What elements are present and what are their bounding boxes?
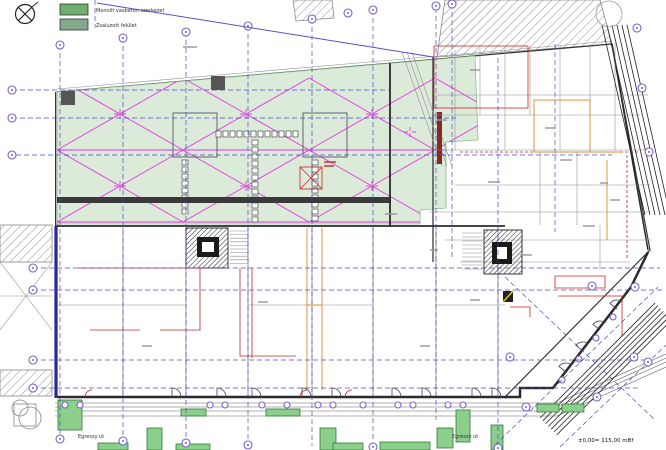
- grid-bubble-dot: [247, 444, 249, 446]
- grid-bubble-dot: [596, 396, 598, 398]
- planter: [333, 443, 363, 450]
- street-label-left: Egressy út: [78, 433, 104, 440]
- grid-bubble-dot: [372, 9, 374, 11]
- grid-bubble-dot: [11, 117, 13, 119]
- grid-bubble-dot: [32, 359, 34, 361]
- grid-bubble-dot: [525, 406, 527, 408]
- grid-bubble-dot: [185, 442, 187, 444]
- plan-line: [252, 210, 258, 215]
- plan-line: [252, 168, 258, 173]
- position-marker: [259, 402, 265, 408]
- grid-bubble-dot: [509, 356, 511, 358]
- legend-item-1-label: Monolit vasbeton szerkezet: [96, 8, 164, 14]
- stair-core-right: [484, 230, 522, 274]
- position-marker: [395, 402, 401, 408]
- planter: [562, 404, 584, 412]
- plan-line: [182, 209, 188, 214]
- position-marker: [593, 335, 599, 341]
- grid-bubble-dot: [122, 440, 124, 442]
- track-line: [557, 320, 666, 435]
- position-marker: [330, 402, 336, 408]
- plan-line: [286, 131, 291, 137]
- position-marker: [445, 402, 451, 408]
- grid-bubble-dot: [648, 151, 650, 153]
- plan-line: [279, 131, 284, 137]
- plan-line: [251, 131, 256, 137]
- plan-line: [258, 131, 263, 137]
- site-plan-drawing: Monolit vasbeton szerkezet Zsaluzott fel…: [0, 0, 666, 450]
- street-planters: [58, 400, 584, 450]
- plan-line: [272, 131, 277, 137]
- grid-bubble-dot: [347, 12, 349, 14]
- grid-bubble-dot: [32, 267, 34, 269]
- grid-bubble-dot: [59, 438, 61, 440]
- plan-line: [216, 131, 221, 137]
- plan-line: [237, 131, 242, 137]
- grid-bubble-dot: [11, 154, 13, 156]
- stair-core-left: [186, 228, 228, 268]
- plan-line: [252, 189, 258, 194]
- grid-bubble-dot: [11, 89, 13, 91]
- plan-line: [252, 182, 258, 187]
- grid-bubble-dot: [59, 44, 61, 46]
- planter: [181, 409, 206, 416]
- plan-line: [252, 217, 258, 222]
- plan-line: [265, 131, 270, 137]
- plan-line: [230, 131, 235, 137]
- grid-bubble-dot: [185, 31, 187, 33]
- position-marker: [360, 402, 366, 408]
- position-marker: [62, 402, 68, 408]
- grid-bubble-dot: [122, 37, 124, 39]
- legend: Monolit vasbeton szerkezet Zsaluzott fel…: [60, 4, 164, 30]
- street-label-right: Egressy út: [452, 433, 478, 440]
- position-marker: [77, 402, 83, 408]
- plan-line: [252, 161, 258, 166]
- planter: [380, 442, 430, 450]
- grid-bubble-dot: [633, 356, 635, 358]
- grid-bubble-dot: [641, 87, 643, 89]
- legend-swatch-2: [60, 19, 88, 30]
- position-marker: [460, 402, 466, 408]
- site-plan-sheet: Monolit vasbeton szerkezet Zsaluzott fel…: [0, 0, 666, 450]
- position-marker: [610, 314, 616, 320]
- grid-bubble-dot: [636, 27, 638, 29]
- grid-bubble-dot: [32, 289, 34, 291]
- legend-item-2-label: Zsaluzott felület: [96, 23, 137, 29]
- planter: [266, 409, 300, 416]
- plan-line: [312, 216, 318, 221]
- plan-line: [223, 131, 228, 137]
- grid-bubble-dot: [451, 3, 453, 5]
- plan-line: [182, 167, 188, 172]
- plan-line: [182, 174, 188, 179]
- plan-line: [252, 147, 258, 152]
- planter: [176, 444, 210, 450]
- position-marker: [315, 402, 321, 408]
- legend-swatch-1: [60, 4, 88, 15]
- position-marker: [207, 402, 213, 408]
- position-marker: [222, 402, 228, 408]
- position-marker: [284, 402, 290, 408]
- grid-bubble-dot: [435, 5, 437, 7]
- plan-line: [312, 160, 318, 165]
- grid-bubble-dot: [647, 361, 649, 363]
- grid-bubble-dot: [591, 285, 593, 287]
- plan-line: [293, 131, 298, 137]
- datum-label: ±0,00= 115,00 mBf: [578, 438, 634, 444]
- plan-line: [182, 181, 188, 186]
- plan-line: [182, 188, 188, 193]
- grid-bubble-dot: [32, 387, 34, 389]
- planter: [537, 404, 559, 412]
- plan-line: [312, 209, 318, 214]
- north-symbol: [16, 2, 39, 24]
- grid-bubble-dot: [311, 18, 313, 20]
- position-marker: [410, 402, 416, 408]
- grid-bubble-dot: [372, 446, 374, 448]
- grid-bubble-dot: [497, 447, 499, 449]
- plan-line: [312, 167, 318, 172]
- grid-bubble-dot: [634, 286, 636, 288]
- planter: [437, 428, 453, 448]
- plan-line: [252, 203, 258, 208]
- plan-line: [182, 160, 188, 165]
- plan-line: [252, 175, 258, 180]
- plan-line: [252, 140, 258, 145]
- planter: [147, 428, 162, 450]
